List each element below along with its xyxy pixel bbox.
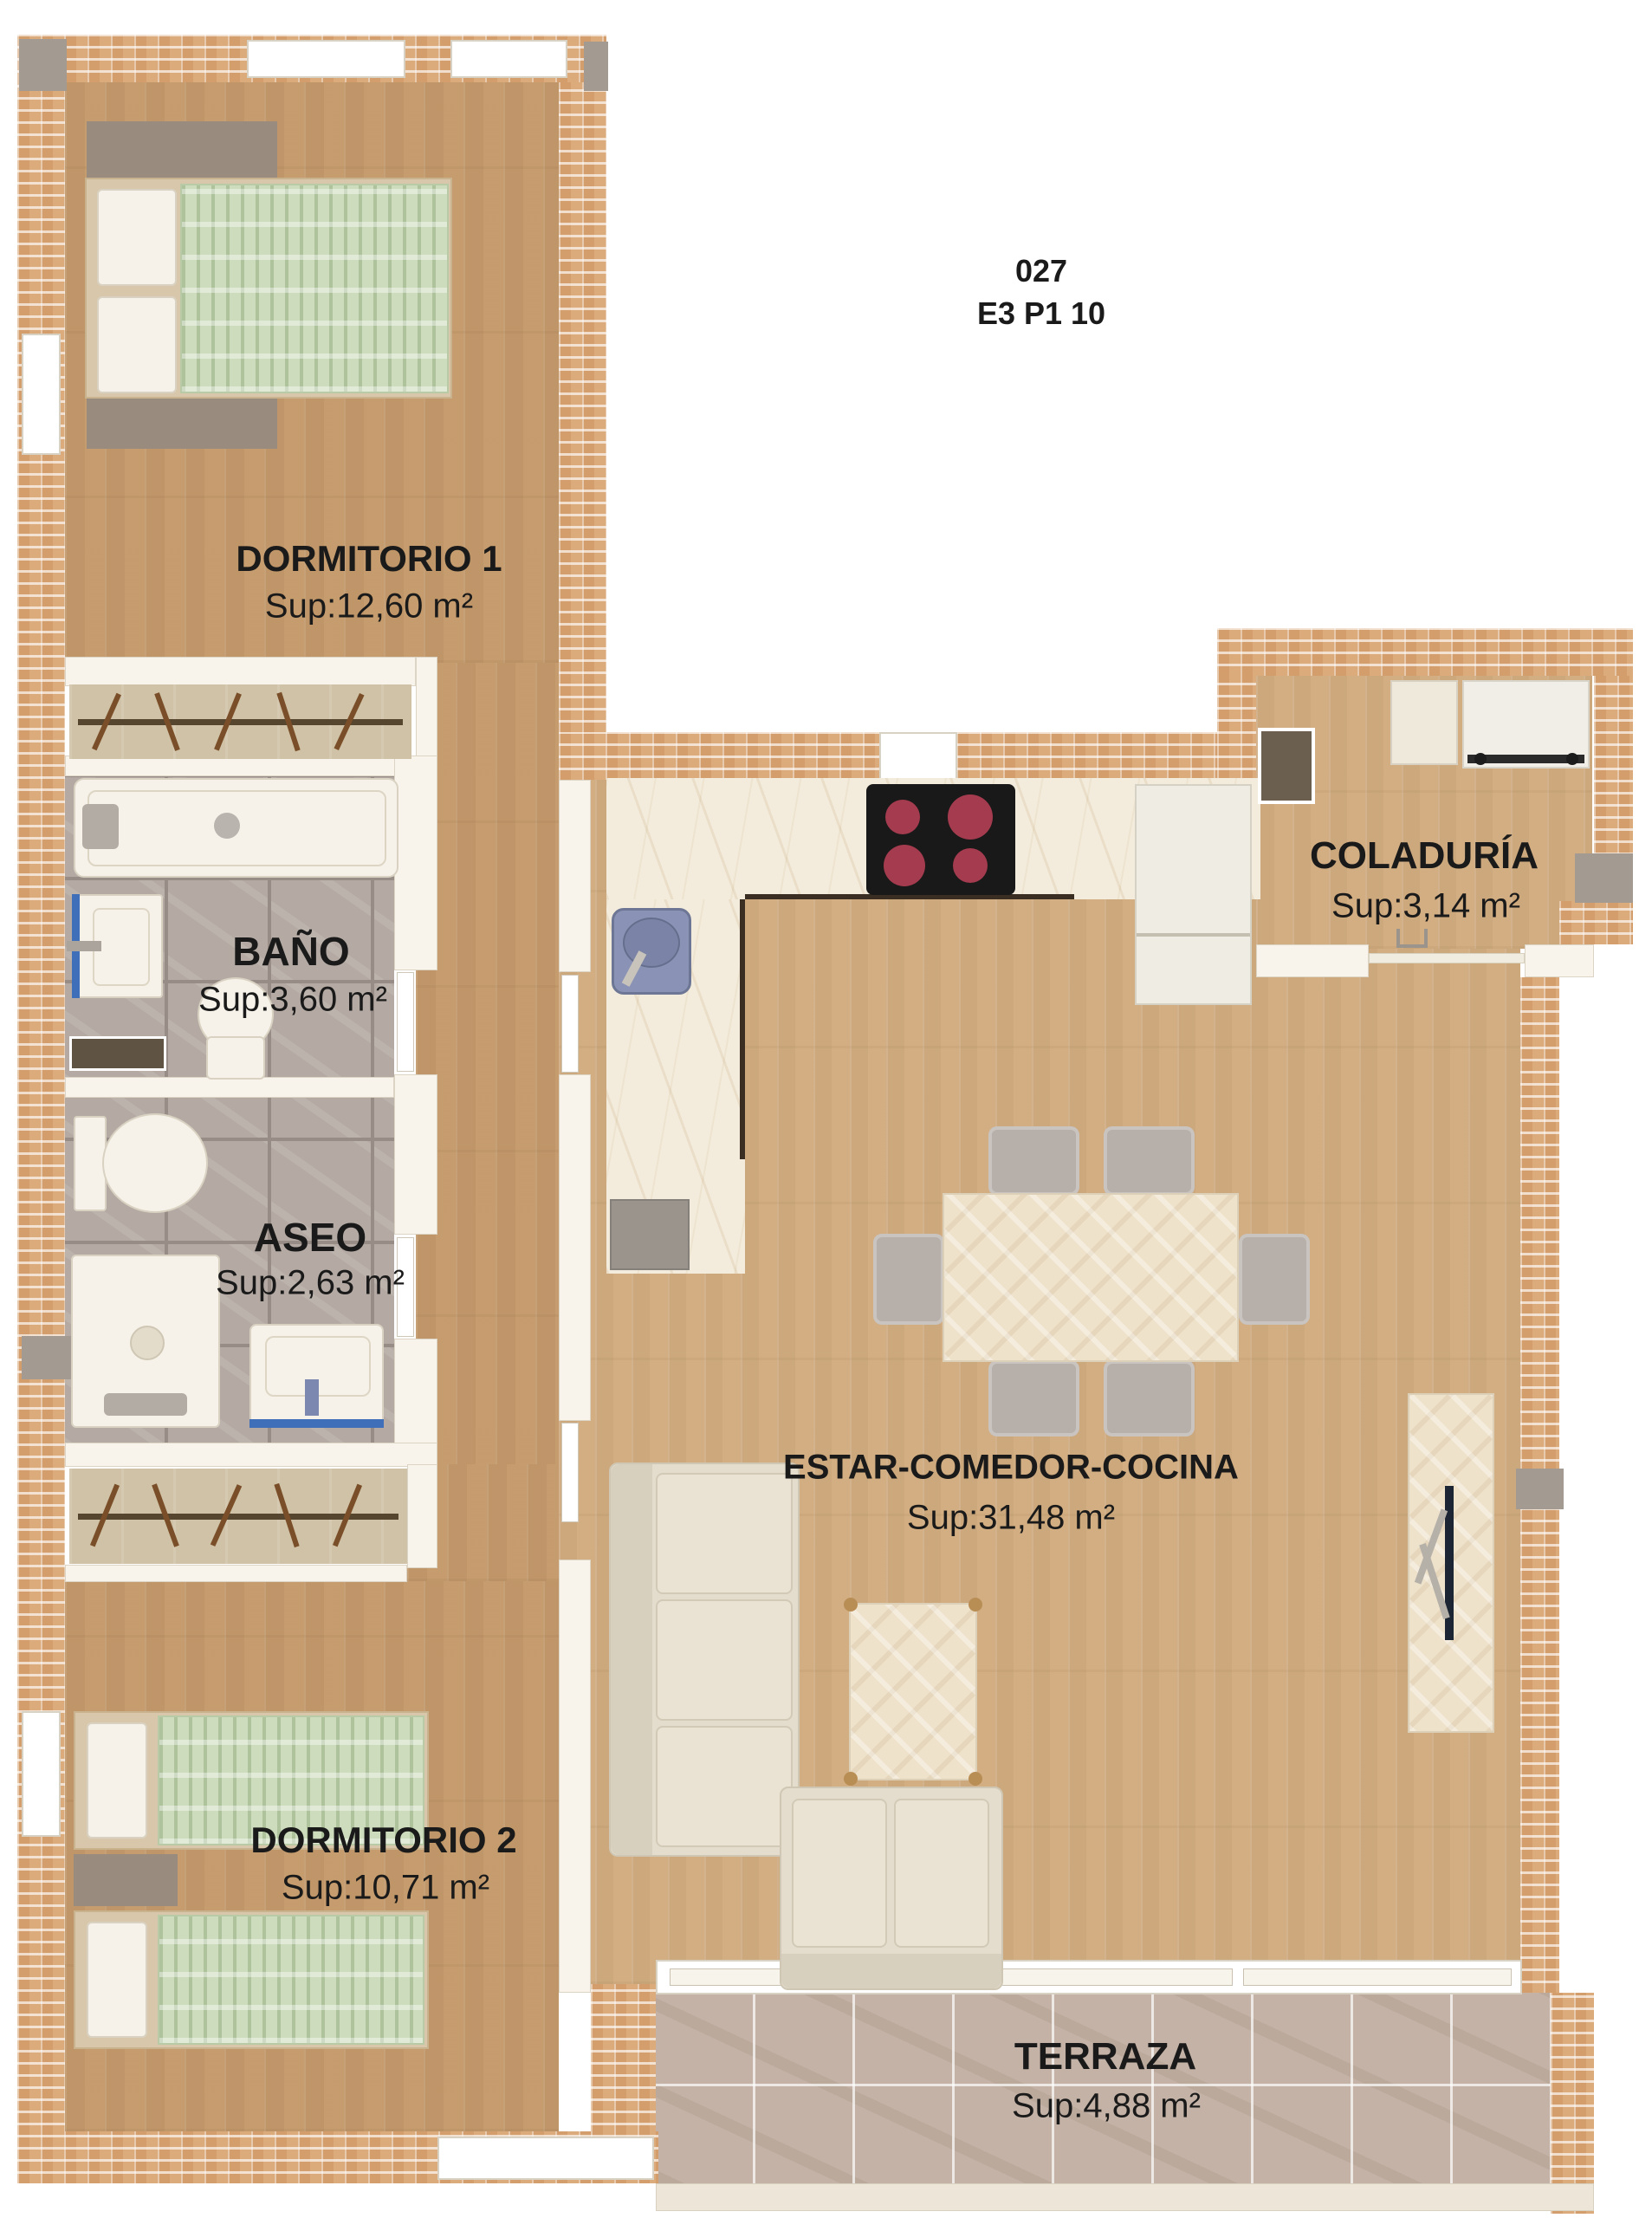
fridge-door-line bbox=[1137, 933, 1250, 937]
kitchen-sink-icon bbox=[612, 908, 691, 995]
bed-cover-icon bbox=[180, 184, 449, 393]
dining-chair-icon bbox=[1104, 1360, 1195, 1437]
room-area-dormitorio-2: Sup:10,71 m² bbox=[282, 1869, 489, 1908]
room-area-coladuria: Sup:3,14 m² bbox=[1331, 887, 1520, 926]
pillar-coladuria-corner bbox=[1575, 853, 1633, 903]
coladuria-door-threshold bbox=[1369, 953, 1525, 963]
pillow-icon bbox=[97, 189, 177, 286]
window-dorm1-left bbox=[22, 334, 61, 455]
table-knob bbox=[844, 1772, 858, 1786]
window-dorm1-top bbox=[247, 40, 405, 78]
pillar-top-right bbox=[584, 42, 608, 91]
wall-dorm1-right bbox=[559, 82, 606, 732]
room-label-coladuria: COLADURÍA bbox=[1310, 834, 1539, 878]
wall-bano-aseo bbox=[65, 1077, 394, 1098]
toilet-icon bbox=[102, 1113, 208, 1213]
wall-closet2-bottom bbox=[65, 1565, 407, 1582]
wall-terraza-bottom bbox=[656, 2183, 1594, 2211]
wall-bath-right-a bbox=[394, 756, 437, 970]
dining-chair-icon bbox=[1239, 1234, 1310, 1325]
washing-machine-icon bbox=[1462, 680, 1590, 769]
wardrobe-rail bbox=[78, 719, 403, 725]
wall-corridor-right-b bbox=[559, 1074, 591, 1421]
plan-title-line1: 027 bbox=[1015, 253, 1067, 289]
dining-chair-icon bbox=[873, 1234, 944, 1325]
sofa-cushion bbox=[656, 1473, 793, 1594]
shower-drain bbox=[130, 1326, 165, 1360]
counter-edge bbox=[740, 899, 745, 1159]
room-label-aseo: ASEO bbox=[254, 1214, 366, 1261]
room-label-estar-comedor-cocina: ESTAR-COMEDOR-COCINA bbox=[783, 1449, 1239, 1488]
washer-knob-icon bbox=[1474, 753, 1487, 765]
loveseat-back bbox=[781, 1954, 1001, 1988]
bathroom-sink-icon bbox=[72, 894, 163, 998]
shower-tray-icon bbox=[71, 1255, 220, 1428]
wall-terraza-right bbox=[1551, 1993, 1594, 2214]
toilet-tank bbox=[206, 1036, 265, 1080]
wall-corridor-right-a bbox=[559, 780, 591, 972]
wall-bath-right-b bbox=[394, 1074, 437, 1235]
coffee-table-icon bbox=[849, 1603, 977, 1780]
sofa-icon bbox=[609, 1462, 800, 1857]
table-knob bbox=[844, 1598, 858, 1612]
coladuria-door-handle-icon bbox=[1396, 929, 1428, 948]
wall-bath-right-c bbox=[394, 1339, 437, 1447]
room-area-dormitorio-1: Sup:12,60 m² bbox=[265, 587, 473, 626]
wall-closet2-right bbox=[407, 1464, 437, 1568]
wall-coladuria-left bbox=[1217, 676, 1256, 780]
dining-chair-icon bbox=[988, 1360, 1079, 1437]
room-area-estar-comedor-cocina: Sup:31,48 m² bbox=[907, 1499, 1115, 1538]
tap-icon bbox=[67, 941, 101, 951]
bench-icon bbox=[87, 399, 277, 449]
pillar-living-right bbox=[1516, 1469, 1564, 1509]
sofa-back bbox=[611, 1464, 652, 1855]
dining-chair-icon bbox=[988, 1126, 1079, 1196]
shower-fixture-icon bbox=[82, 804, 119, 849]
pillow-icon bbox=[97, 296, 177, 393]
floor-plan: 027 E3 P1 10 DORMITORIO 1 Sup:12,60 m² B… bbox=[0, 0, 1652, 2218]
room-label-bano: BAÑO bbox=[232, 928, 349, 975]
wall-jog-right bbox=[1559, 901, 1633, 944]
sink-blue-edge bbox=[249, 1419, 384, 1428]
bathtub-icon bbox=[74, 778, 398, 878]
bath-cabinet-icon bbox=[69, 1036, 166, 1071]
sofa-cushion bbox=[656, 1599, 793, 1721]
window-dorm1-top-2 bbox=[450, 40, 567, 78]
pillar-top-left bbox=[19, 39, 67, 91]
utility-shaft-icon bbox=[1258, 728, 1315, 804]
loveseat-icon bbox=[780, 1787, 1003, 1990]
wall-aseo-bottom bbox=[65, 1443, 437, 1467]
dishwasher-icon bbox=[610, 1199, 690, 1270]
room-area-aseo: Sup:2,63 m² bbox=[216, 1264, 405, 1303]
plan-title-line2: E3 P1 10 bbox=[977, 295, 1105, 332]
bed-cover-icon bbox=[158, 1915, 424, 2045]
aseo-sink-icon bbox=[249, 1324, 384, 1428]
loveseat-cushion bbox=[894, 1799, 989, 1948]
window-dorm2-left bbox=[22, 1711, 61, 1837]
terraza-glass-pane bbox=[966, 1968, 1233, 1986]
wall-dorm2-right bbox=[559, 1560, 591, 1993]
wardrobe-icon bbox=[69, 1469, 407, 1564]
room-area-terraza: Sup:4,88 m² bbox=[1012, 2087, 1201, 2126]
room-label-dormitorio-1: DORMITORIO 1 bbox=[236, 538, 502, 580]
wardrobe-icon bbox=[69, 684, 411, 759]
entrance-door-opening bbox=[879, 732, 957, 780]
dorm2-door bbox=[561, 1423, 579, 1522]
pillow-icon bbox=[87, 1722, 147, 1839]
wall-coladuria-bottom-b bbox=[1525, 944, 1594, 977]
table-knob bbox=[969, 1598, 982, 1612]
nightstand-icon bbox=[74, 1854, 178, 1906]
burner-icon bbox=[885, 800, 920, 834]
dining-table-icon bbox=[943, 1193, 1239, 1362]
wall-coladuria-top bbox=[1217, 628, 1633, 676]
burner-icon bbox=[948, 794, 993, 840]
kitchen-door bbox=[561, 975, 579, 1073]
shower-head-icon bbox=[104, 1393, 187, 1416]
sink-basin bbox=[623, 918, 680, 968]
fridge-icon bbox=[1135, 784, 1252, 1005]
window-dorm2-bottom bbox=[437, 2137, 654, 2180]
table-knob bbox=[969, 1772, 982, 1786]
wall-closet1-corridor bbox=[416, 657, 437, 762]
loveseat-cushion bbox=[792, 1799, 887, 1948]
pillow-icon bbox=[87, 1922, 147, 2038]
wall-coladuria-bottom-a bbox=[1256, 944, 1369, 977]
dining-chair-icon bbox=[1104, 1126, 1195, 1196]
wall-closet1-top bbox=[65, 657, 416, 686]
room-area-bano: Sup:3,60 m² bbox=[198, 981, 387, 1020]
laundry-cabinet-icon bbox=[1390, 680, 1458, 765]
cooktop-icon bbox=[866, 784, 1015, 895]
room-label-dormitorio-2: DORMITORIO 2 bbox=[250, 1819, 516, 1861]
sofa-cushion bbox=[656, 1726, 793, 1847]
faucet-icon bbox=[214, 813, 240, 839]
terraza-glass-pane bbox=[1243, 1968, 1512, 1986]
washer-knob-icon bbox=[1566, 753, 1578, 765]
bano-door bbox=[397, 972, 414, 1072]
room-label-terraza: TERRAZA bbox=[1014, 2035, 1196, 2079]
burner-icon bbox=[953, 848, 988, 883]
tap-icon bbox=[305, 1379, 319, 1416]
nightstand-icon bbox=[87, 121, 277, 178]
burner-icon bbox=[884, 845, 925, 886]
